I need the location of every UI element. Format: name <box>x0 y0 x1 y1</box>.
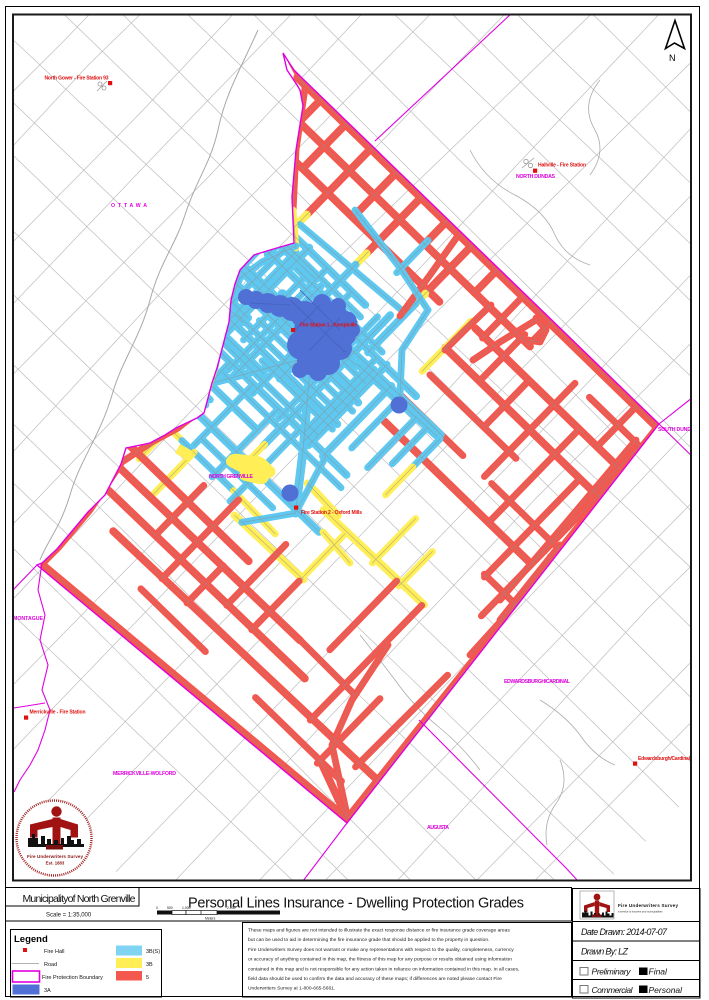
svg-text:Underwriters Survey at 1-800-6: Underwriters Survey at 1-800-665-5661. <box>248 986 335 992</box>
svg-text:Municipalityof North Grenville: Municipalityof North Grenville <box>23 893 136 905</box>
svg-text:Scale = 1:35,000: Scale = 1:35,000 <box>46 913 92 919</box>
svg-text:Preliminary: Preliminary <box>592 967 632 977</box>
svg-text:a service to insurers and muni: a service to insurers and municipalities <box>618 910 663 914</box>
svg-text:Fire Hall: Fire Hall <box>44 949 64 955</box>
svg-text:Personal Lines Insurance - Dwe: Personal Lines Insurance - Dwelling Prot… <box>188 896 524 912</box>
svg-text:Fire Station 1 - Kemptville: Fire Station 1 - Kemptville <box>300 323 357 329</box>
svg-text:field data should be used to c: field data should be used to confirm the… <box>248 976 502 982</box>
svg-text:MERRICKVILLE-WOLFORD: MERRICKVILLE-WOLFORD <box>113 771 176 777</box>
svg-text:These maps and figures are not: These maps and figures are not intended … <box>248 928 510 934</box>
svg-text:Drawn By: LZ: Drawn By: LZ <box>581 947 629 957</box>
svg-text:or accuracy of anything contai: or accuracy of anything contained in thi… <box>248 957 512 963</box>
svg-text:MONTAGUE: MONTAGUE <box>13 616 44 622</box>
svg-text:0: 0 <box>156 906 158 910</box>
svg-text:5: 5 <box>146 975 149 981</box>
svg-text:Legend: Legend <box>14 934 48 945</box>
svg-text:Hallville - Fire Station: Hallville - Fire Station <box>538 163 586 169</box>
svg-text:NORTH DUNDAS: NORTH DUNDAS <box>516 174 556 180</box>
svg-text:Fire Underwriters Survey: Fire Underwriters Survey <box>618 903 678 908</box>
svg-text:Merrickville - Fire Station: Merrickville - Fire Station <box>30 710 86 716</box>
svg-text:EDWARDSBURGH/CARDINAL: EDWARDSBURGH/CARDINAL <box>504 679 571 685</box>
svg-text:contained in this map and is n: contained in this map and is not respons… <box>248 966 519 972</box>
svg-text:Edwardsburgh/Cardinal: Edwardsburgh/Cardinal <box>638 756 691 762</box>
svg-text:SOUTH DUND: SOUTH DUND <box>658 427 691 433</box>
svg-text:Fire Protection Boundary: Fire Protection Boundary <box>42 975 103 981</box>
svg-text:500: 500 <box>167 906 173 910</box>
svg-text:AUGUSTA: AUGUSTA <box>427 825 449 831</box>
svg-text:Date Drawn: 2014-07-07: Date Drawn: 2014-07-07 <box>581 927 668 937</box>
svg-text:NORTH GRENVILLE: NORTH GRENVILLE <box>209 474 254 480</box>
svg-text:Final: Final <box>649 967 669 977</box>
svg-text:Fire Underwriters Survey does: Fire Underwriters Survey does not warran… <box>248 947 514 953</box>
svg-text:Fire Station 2 - Oxford Mills: Fire Station 2 - Oxford Mills <box>301 510 362 516</box>
svg-text:Personal: Personal <box>649 985 684 995</box>
svg-text:Fire Underwriters Survey: Fire Underwriters Survey <box>27 854 83 859</box>
svg-text:Commercial: Commercial <box>592 985 634 995</box>
svg-text:Est. 1883: Est. 1883 <box>46 861 65 866</box>
svg-text:Road: Road <box>44 962 57 968</box>
svg-text:but can be used to aid in dete: but can be used to aid in determining th… <box>248 937 489 943</box>
svg-text:North Gower - Fire Station 93: North Gower - Fire Station 93 <box>45 76 109 82</box>
svg-text:3B(S): 3B(S) <box>146 949 160 955</box>
svg-text:3A: 3A <box>44 988 51 994</box>
svg-text:Meters: Meters <box>205 917 216 921</box>
svg-text:N: N <box>669 53 676 63</box>
svg-text:3B: 3B <box>146 962 153 968</box>
